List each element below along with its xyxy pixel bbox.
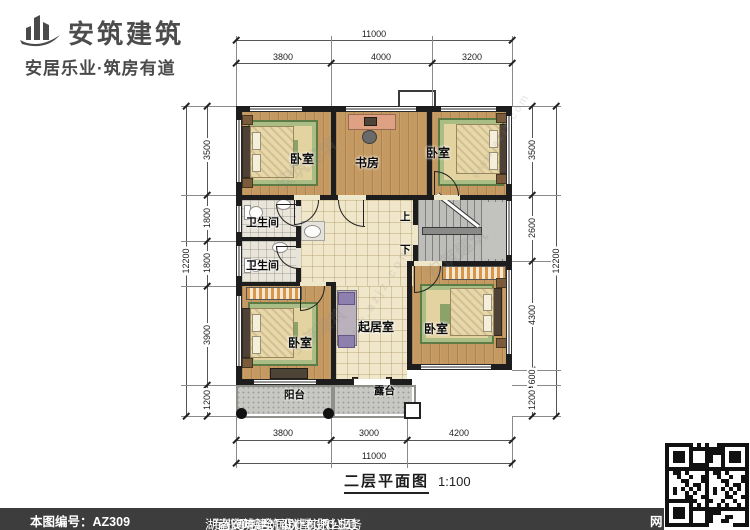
qr-hint-char: 网 [650,511,663,530]
dim-top-overall: 11000 [360,29,388,39]
pillow [483,294,492,311]
room-label-bedroom-br: 卧室 [424,320,448,337]
dim-left-seg-1: 3500 [202,138,212,162]
room-label-study: 书房 [355,154,379,171]
pillow [489,152,498,170]
wall [331,106,336,200]
window [236,120,242,182]
dim-bot-overall: 11000 [360,451,388,461]
drawing-title-block: 二层平面图1:100 [344,470,471,491]
drawing-scale: 1:100 [438,474,471,489]
dimension-line [236,463,512,464]
balcony-column [323,408,334,419]
extension-line [181,241,236,242]
window [236,296,242,366]
wall [413,195,418,225]
room-label-bath-2: 卫生间 [246,257,279,273]
dimension-line [236,440,512,441]
window [254,379,316,385]
dim-right-seg-4: 600 [527,367,537,386]
room-label-bedroom-tr: 卧室 [426,144,450,161]
terrace-post [404,402,421,419]
extension-line [181,286,236,287]
extension-line [331,416,332,468]
dim-left-overall: 12200 [181,246,191,275]
room-label-living: 起居室 [358,318,394,335]
brand-name: 安筑建筑 [68,14,184,51]
dim-left-seg-5: 1200 [202,388,212,412]
company-info: 湖南安筑建筑设计有限公司 专业承接全国别墅设计业务 咨询电话：400-8070-… [205,511,219,525]
extension-line [181,385,236,386]
extension-line [331,36,332,106]
extension-line [181,416,236,417]
pillow [252,154,261,172]
window [441,106,496,112]
wall [236,195,512,200]
extension-line [512,36,513,106]
brand-logo: 安筑建筑 [18,10,184,55]
door-leaf [276,246,298,247]
door-opening [413,225,418,245]
brand-tagline: 安居乐业·筑房有道 [25,54,176,79]
extension-line [236,36,237,106]
nightstand [242,115,253,125]
wall [413,245,418,261]
monitor [364,117,377,126]
chair [362,130,377,144]
footer-bar: 本图编号：AZ309 湖南安筑建筑设计有限公司 专业承接全国别墅设计业务 咨询电… [0,508,750,530]
pillow [252,132,261,150]
door-leaf [300,286,301,310]
window [506,116,512,184]
dim-right-seg-2: 2600 [527,216,537,240]
floor-plan: 卧室 书房 卧室 卫生间 卫生间 卧室 起居室 卧室 阳台 露台 上 下 [236,106,512,422]
stairs-down-label: 下 [400,242,411,257]
room-label-bedroom-bl: 卧室 [288,334,312,351]
plan-number: 本图编号：AZ309 [30,511,130,530]
window [236,206,242,232]
dim-bot-seg-2: 3000 [357,428,381,438]
window [421,364,491,370]
balcony-column [236,408,247,419]
window [506,201,512,255]
sofa-pillow [338,335,355,348]
nightstand [242,358,253,368]
dim-right-seg-3: 4300 [527,303,537,327]
pillow [489,130,498,148]
pillow [252,314,261,332]
nightstand [242,178,253,188]
door-leaf [414,266,415,292]
dim-left-seg-4: 3900 [202,323,212,347]
dim-bot-seg-1: 3800 [271,428,295,438]
extension-line [432,36,433,106]
window [346,106,416,112]
dimension-line [236,40,512,41]
pillow [252,336,261,354]
stairs-landing [482,202,506,259]
dim-top-seg-2: 4000 [369,52,393,62]
door-leaf [363,200,364,226]
dim-top-seg-1: 3800 [271,52,295,62]
wardrobe [246,287,302,300]
wall [407,266,412,370]
sofa-pillow [338,292,355,305]
drawing-title: 二层平面图 [344,473,429,494]
dimension-line [236,63,512,64]
floorplan-poster: 安筑建筑 安居乐业·筑房有道 11000 3800 4000 3200 3800… [0,0,750,530]
window [236,246,242,276]
dim-left-seg-3: 1800 [202,251,212,275]
door-leaf [434,171,435,195]
room-label-terrace: 露台 [374,383,395,398]
dim-right-seg-5: 1200 [527,388,537,412]
wall [236,237,301,241]
dim-left-seg-2: 1800 [202,206,212,230]
stair-rail [422,227,482,235]
window [250,106,302,112]
door-leaf [276,204,298,205]
extension-line [181,195,236,196]
wall [331,282,336,385]
tv-cabinet [270,368,308,379]
qr-code [664,442,750,530]
room-label-balcony: 阳台 [284,387,305,402]
extension-line [181,106,236,107]
extension-line [407,416,408,468]
room-label-bath-1: 卫生间 [246,214,279,230]
building-swoosh-icon [18,10,62,55]
pillow [483,315,492,332]
phone-text: 咨询电话：400-8070-511 [219,514,358,530]
dim-top-seg-3: 3200 [460,52,484,62]
basin [304,225,321,238]
extension-line [512,195,561,196]
dim-right-seg-1: 3500 [527,138,537,162]
dim-right-overall: 12200 [551,246,561,275]
dim-bot-seg-3: 4200 [447,428,471,438]
room-label-bedroom-tl: 卧室 [290,150,314,167]
stairs-up-label: 上 [400,209,411,224]
window [506,270,512,354]
